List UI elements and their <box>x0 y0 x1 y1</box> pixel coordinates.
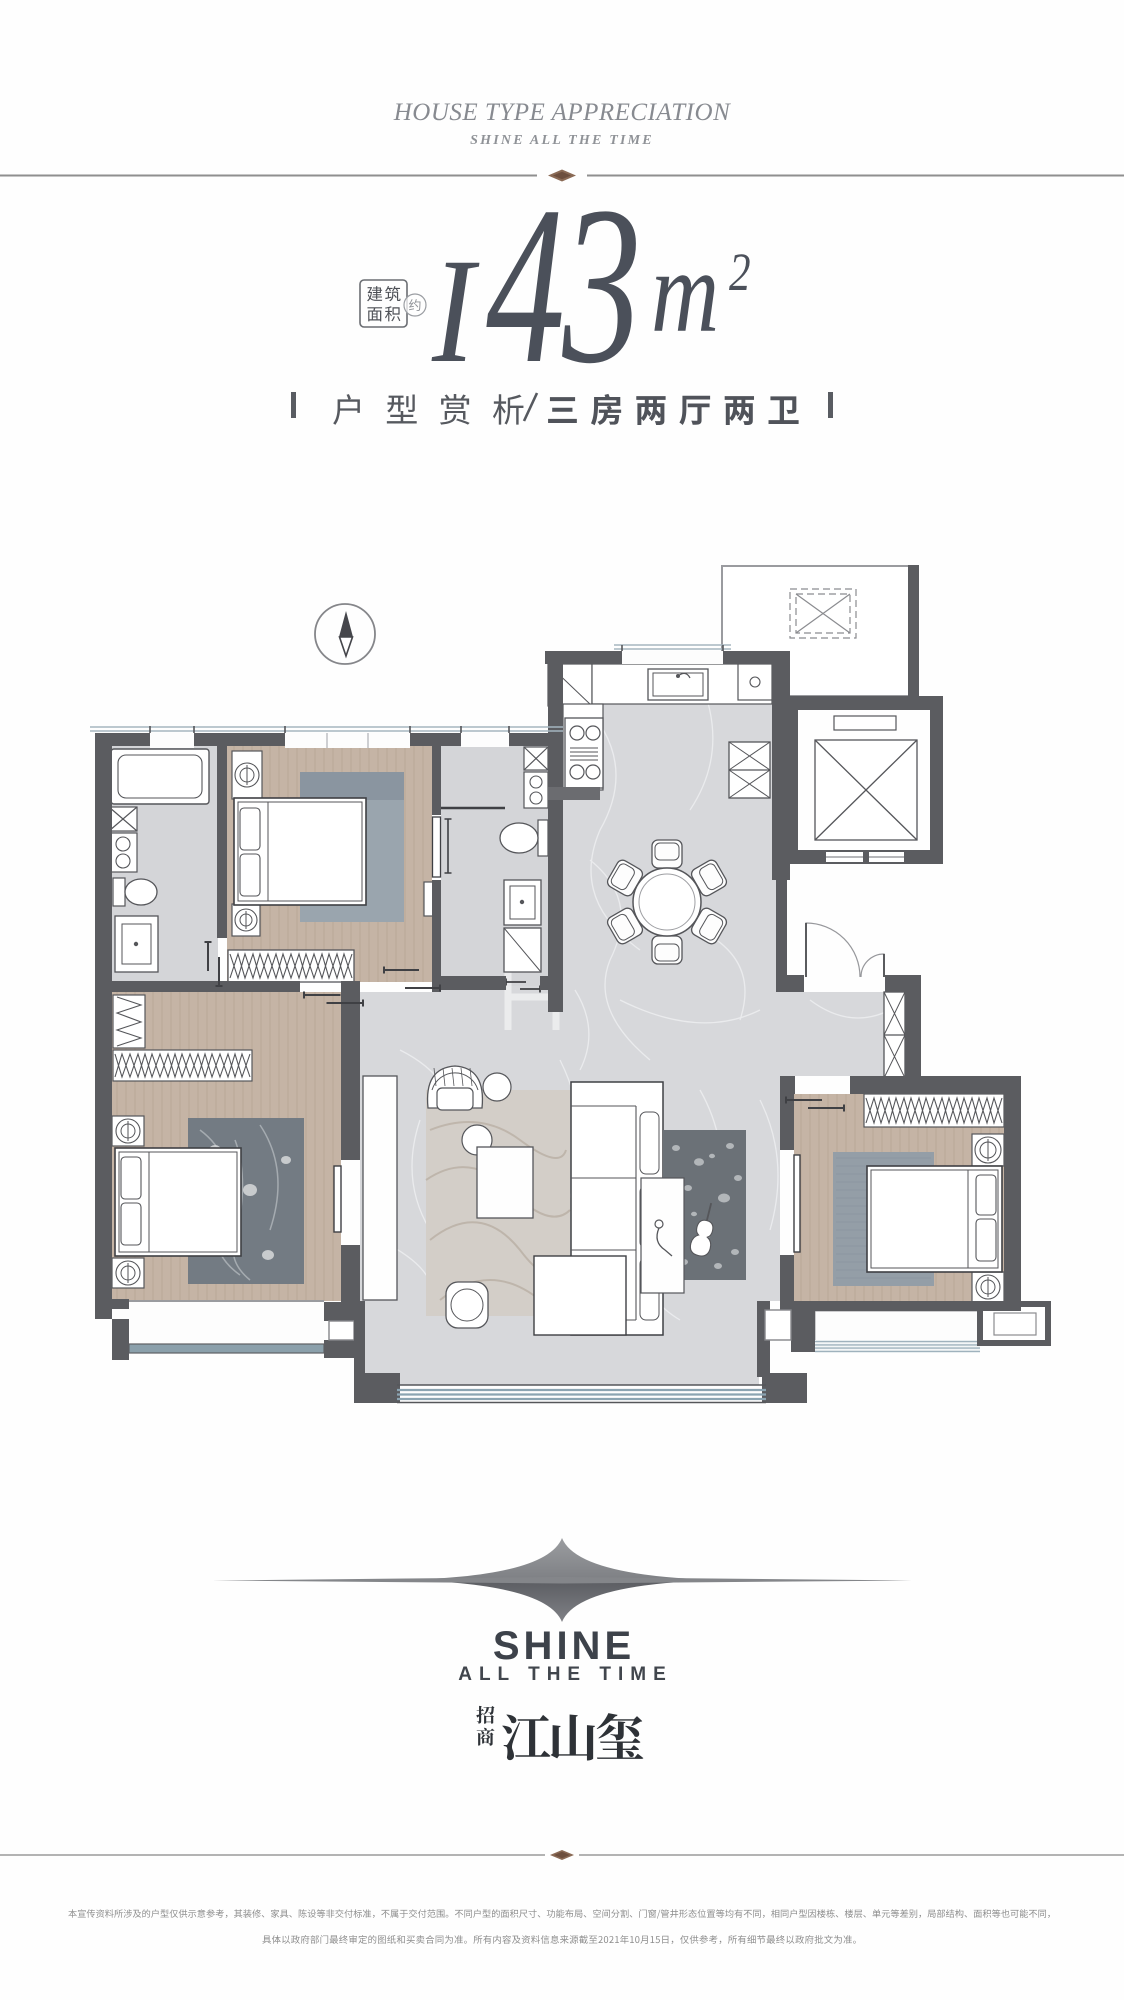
svg-text:43: 43 <box>486 190 639 385</box>
svg-text:2: 2 <box>729 241 751 302</box>
svg-text:I: I <box>431 228 480 385</box>
svg-text:m: m <box>651 227 719 357</box>
